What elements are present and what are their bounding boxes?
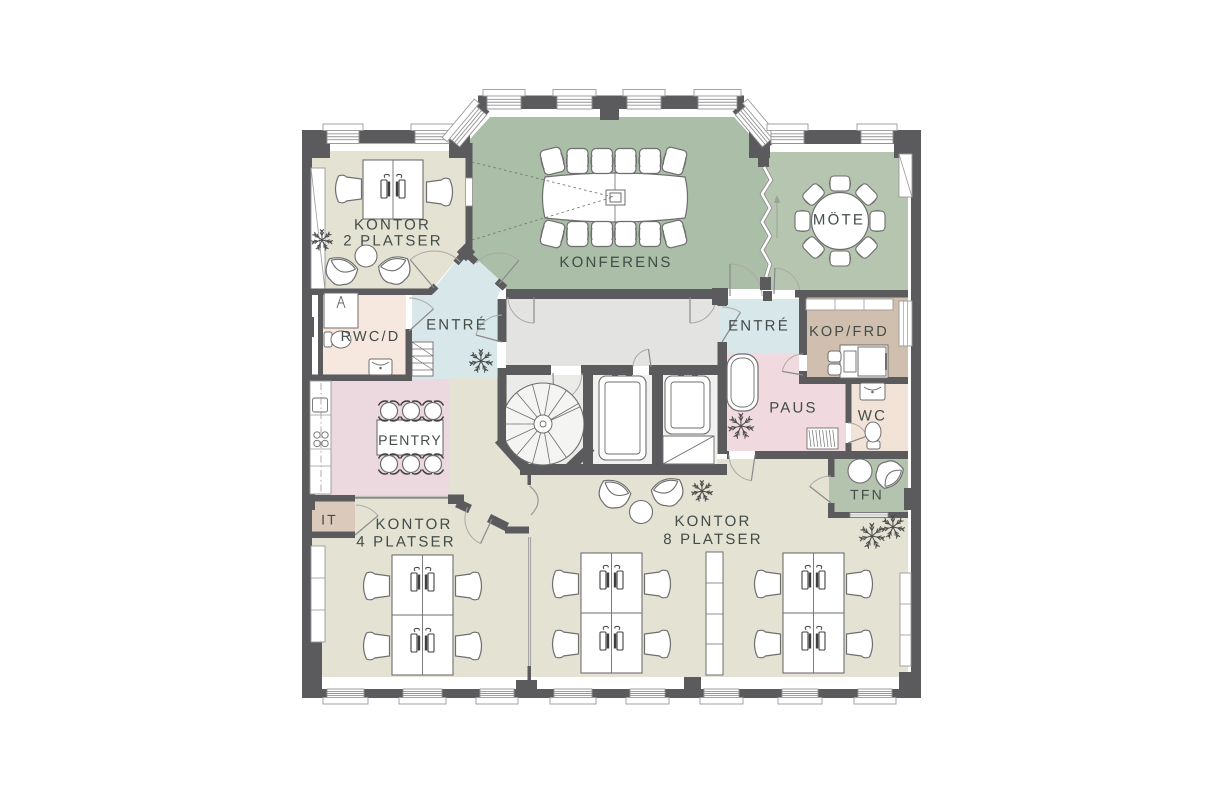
svg-text:KONFERENS: KONFERENS: [559, 254, 672, 271]
svg-text:KONTOR: KONTOR: [375, 516, 452, 533]
svg-text:ENTRÉ: ENTRÉ: [728, 317, 790, 335]
svg-text:KONTOR: KONTOR: [354, 217, 431, 234]
svg-text:PENTRY: PENTRY: [378, 432, 442, 448]
svg-text:2 PLATSER: 2 PLATSER: [343, 233, 443, 250]
svg-text:MÖTE: MÖTE: [813, 212, 865, 229]
svg-text:PAUS: PAUS: [769, 400, 818, 417]
svg-text:4 PLATSER: 4 PLATSER: [356, 534, 456, 551]
svg-text:8 PLATSER: 8 PLATSER: [663, 531, 763, 548]
svg-text:KOP/FRD: KOP/FRD: [809, 324, 889, 340]
svg-text:ENTRÉ: ENTRÉ: [426, 316, 488, 334]
svg-text:TFN: TFN: [850, 487, 884, 503]
svg-text:IT: IT: [321, 512, 338, 528]
svg-text:KONTOR: KONTOR: [674, 513, 751, 530]
svg-text:RWC/D: RWC/D: [341, 329, 401, 345]
svg-text:WC: WC: [858, 408, 887, 425]
